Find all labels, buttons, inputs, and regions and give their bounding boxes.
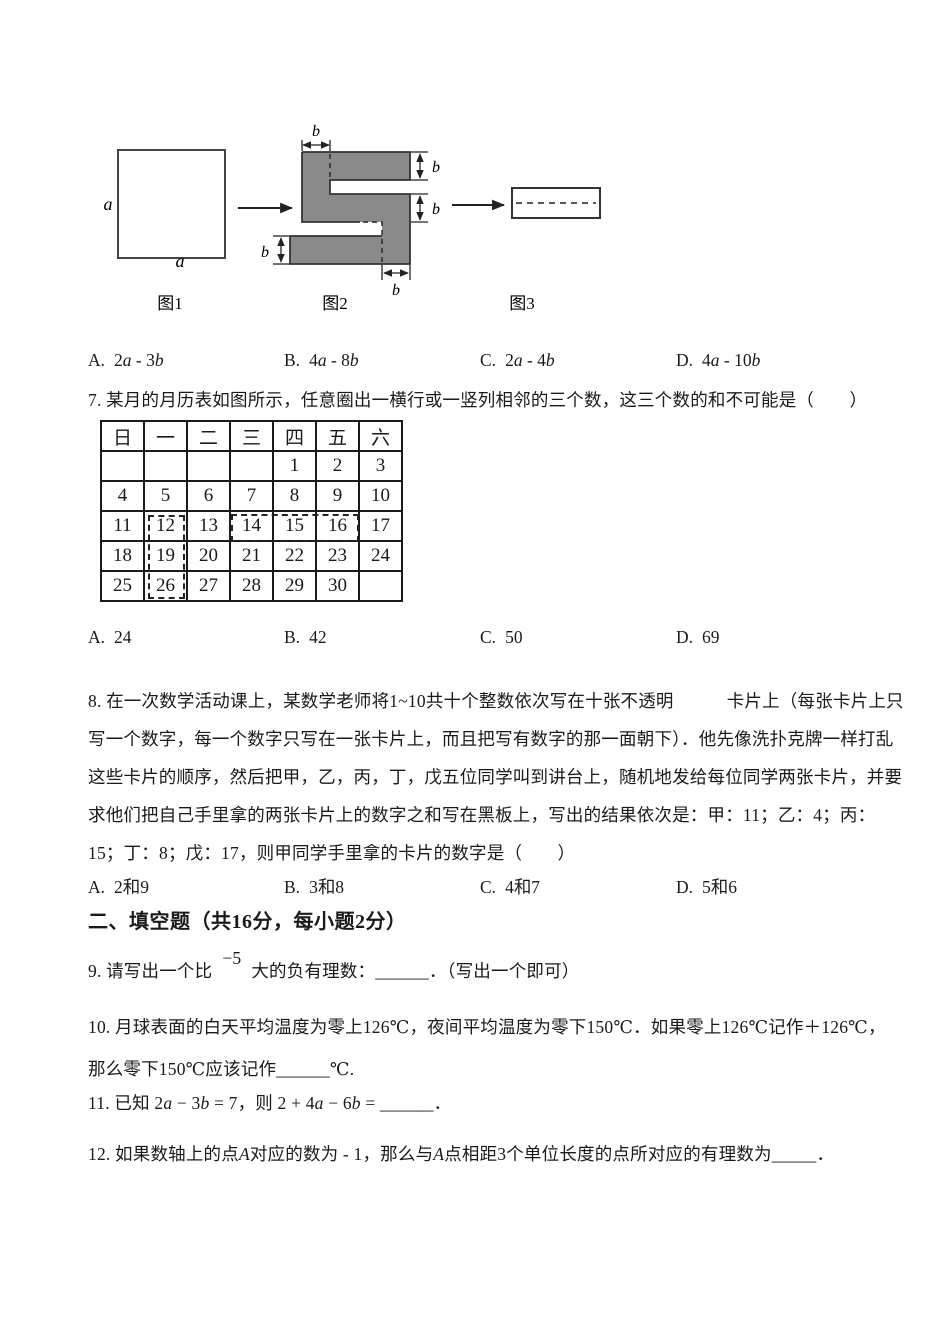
question-10: 10. 月球表面的白天平均温度为零上126℃，夜间平均温度为零下150℃．如果零… xyxy=(88,1006,886,1090)
option-d: D.4a - 10b xyxy=(676,350,872,371)
fig2-caption: 图2 xyxy=(322,294,348,313)
calendar-cell: 25 xyxy=(101,571,144,601)
option-a: A.2a - 3b xyxy=(88,350,284,371)
question-8-line: 8. 在一次数学活动课上，某数学老师将1~10共十个整数依次写在十张不透明 卡片… xyxy=(88,682,904,720)
option-key: B. xyxy=(284,627,300,647)
question-7-text: 7. 某月的月历表如图所示，任意圈出一横行或一竖列相邻的三个数，这三个数的和不可… xyxy=(88,387,867,412)
calendar-cell: 30 xyxy=(316,571,359,601)
calendar-header-cell: 日 xyxy=(101,421,144,451)
calendar-header-row: 日 一 二 三 四 五 六 xyxy=(101,421,402,451)
option-key: C. xyxy=(480,350,496,370)
option-key: A. xyxy=(88,877,105,897)
calendar-cell: 20 xyxy=(187,541,230,571)
question-9-prefix: 9. 请写出一个比 xyxy=(88,961,212,981)
option-a: A.24 xyxy=(88,627,284,648)
option-text: 5和6 xyxy=(702,877,737,897)
calendar-cell: 23 xyxy=(316,541,359,571)
question-9-suffix: 大的负有理数：______．（写出一个即可） xyxy=(251,961,579,981)
calendar-cell: 10 xyxy=(359,481,402,511)
calendar-row: 18 19 20 21 22 23 24 xyxy=(101,541,402,571)
option-b: B.42 xyxy=(284,627,480,648)
question-6-figure: a a b b b b b xyxy=(80,118,640,318)
calendar-cell: 29 xyxy=(273,571,316,601)
option-text: 3和8 xyxy=(309,877,344,897)
option-key: D. xyxy=(676,627,693,647)
calendar-header-cell: 一 xyxy=(144,421,187,451)
dashed-selection-row-14-15-16 xyxy=(231,514,359,542)
fig1-bottom-label: a xyxy=(176,251,185,271)
calendar-cell: 7 xyxy=(230,481,273,511)
option-a: A.2和9 xyxy=(88,874,284,899)
calendar-cell xyxy=(101,451,144,481)
question-7-options: A.24 B.42 C.50 D.69 xyxy=(88,627,872,648)
option-d: D.5和6 xyxy=(676,874,872,899)
calendar-cell: 28 xyxy=(230,571,273,601)
calendar-cell: 27 xyxy=(187,571,230,601)
calendar-table: 日 一 二 三 四 五 六 1 2 3 4 5 6 7 xyxy=(100,420,403,602)
calendar-cell: 4 xyxy=(101,481,144,511)
fig1-side-label: a xyxy=(104,194,113,214)
calendar-cell: 11 xyxy=(101,511,144,541)
calendar-cell: 8 xyxy=(273,481,316,511)
calendar-header-cell: 三 xyxy=(230,421,273,451)
fig2-dim-label-b: b xyxy=(261,244,269,261)
fig3-caption: 图3 xyxy=(509,294,535,313)
calendar-row: 4 5 6 7 8 9 10 xyxy=(101,481,402,511)
section-2-heading: 二、填空题（共16分，每小题2分） xyxy=(88,905,407,934)
option-b: B.3和8 xyxy=(284,874,480,899)
option-d: D.69 xyxy=(676,627,872,648)
option-text: 2a - 3b xyxy=(114,350,164,370)
fig2-dim-label-b: b xyxy=(432,201,440,218)
fig1-caption: 图1 xyxy=(157,294,183,313)
calendar-table-wrapper: 日 一 二 三 四 五 六 1 2 3 4 5 6 7 xyxy=(100,420,403,602)
calendar-header-cell: 六 xyxy=(359,421,402,451)
fig2-dim-label-b: b xyxy=(312,123,320,140)
calendar-row: 25 26 27 28 29 30 xyxy=(101,571,402,601)
calendar-cell: 3 xyxy=(359,451,402,481)
calendar-cell: 2 xyxy=(316,451,359,481)
calendar-cell: 17 xyxy=(359,511,402,541)
question-9-raised-value: −5 xyxy=(222,948,241,969)
fig2-dim-label-b: b xyxy=(392,282,400,299)
calendar-cell: 1 xyxy=(273,451,316,481)
question-8: 8. 在一次数学活动课上，某数学老师将1~10共十个整数依次写在十张不透明 卡片… xyxy=(88,682,904,872)
option-c: C.2a - 4b xyxy=(480,350,676,371)
calendar-cell xyxy=(144,451,187,481)
option-key: D. xyxy=(676,877,693,897)
question-8-line: 这些卡片的顺序，然后把甲，乙，丙，丁，戊五位同学叫到讲台上，随机地发给每位同学两… xyxy=(88,758,904,796)
calendar-cell xyxy=(187,451,230,481)
option-key: B. xyxy=(284,877,300,897)
option-key: A. xyxy=(88,627,105,647)
option-text: 4a - 8b xyxy=(309,350,359,370)
dashed-selection-column-12-19-26 xyxy=(148,515,185,599)
calendar-header-cell: 二 xyxy=(187,421,230,451)
calendar-cell: 18 xyxy=(101,541,144,571)
question-8-line: 15；丁：8；戊：17，则甲同学手里拿的卡片的数字是（ ） xyxy=(88,834,904,872)
calendar-cell xyxy=(359,571,402,601)
exam-page: a a b b b b b xyxy=(0,0,950,1344)
option-key: A. xyxy=(88,350,105,370)
option-text: 50 xyxy=(505,627,523,647)
question-12: 12. 如果数轴上的点A对应的数为 - 1，那么与A点相距3个单位长度的点所对应… xyxy=(88,1141,834,1166)
question-6-options: A.2a - 3b B.4a - 8b C.2a - 4b D.4a - 10b xyxy=(88,350,872,371)
option-key: B. xyxy=(284,350,300,370)
fig2-s-shape xyxy=(290,152,410,264)
calendar-cell: 22 xyxy=(273,541,316,571)
calendar-cell: 24 xyxy=(359,541,402,571)
option-text: 69 xyxy=(702,627,720,647)
option-c: C.4和7 xyxy=(480,874,676,899)
calendar-cell: 21 xyxy=(230,541,273,571)
calendar-cell: 5 xyxy=(144,481,187,511)
option-text: 24 xyxy=(114,627,132,647)
calendar-cell xyxy=(230,451,273,481)
question-10-line: 10. 月球表面的白天平均温度为零上126℃，夜间平均温度为零下150℃．如果零… xyxy=(88,1006,886,1048)
calendar-cell: 6 xyxy=(187,481,230,511)
calendar-header-cell: 四 xyxy=(273,421,316,451)
question-8-options: A.2和9 B.3和8 C.4和7 D.5和6 xyxy=(88,874,872,899)
fig2-dim-label-b: b xyxy=(432,159,440,176)
option-text: 4a - 10b xyxy=(702,350,760,370)
fig1-square xyxy=(118,150,225,258)
question-9: 9. 请写出一个比−5大的负有理数：______．（写出一个即可） xyxy=(88,958,580,983)
option-text: 4和7 xyxy=(505,877,540,897)
question-8-line: 写一个数字，每一个数字只写在一张卡片上，而且把写有数字的那一面朝下）．他先像洗扑… xyxy=(88,720,904,758)
question-10-line: 那么零下150℃应该记作______℃. xyxy=(88,1048,886,1090)
option-text: 42 xyxy=(309,627,327,647)
question-8-line: 求他们把自己手里拿的两张卡片上的数字之和写在黑板上，写出的结果依次是：甲：11；… xyxy=(88,796,904,834)
option-text: 2a - 4b xyxy=(505,350,555,370)
calendar-row: 1 2 3 xyxy=(101,451,402,481)
calendar-cell: 9 xyxy=(316,481,359,511)
option-key: C. xyxy=(480,627,496,647)
question-11: 11. 已知 2a − 3b = 7，则 2 + 4a − 6b = _____… xyxy=(88,1090,451,1115)
option-key: D. xyxy=(676,350,693,370)
option-c: C.50 xyxy=(480,627,676,648)
calendar-header-cell: 五 xyxy=(316,421,359,451)
option-key: C. xyxy=(480,877,496,897)
calendar-cell: 13 xyxy=(187,511,230,541)
option-text: 2和9 xyxy=(114,877,149,897)
option-b: B.4a - 8b xyxy=(284,350,480,371)
